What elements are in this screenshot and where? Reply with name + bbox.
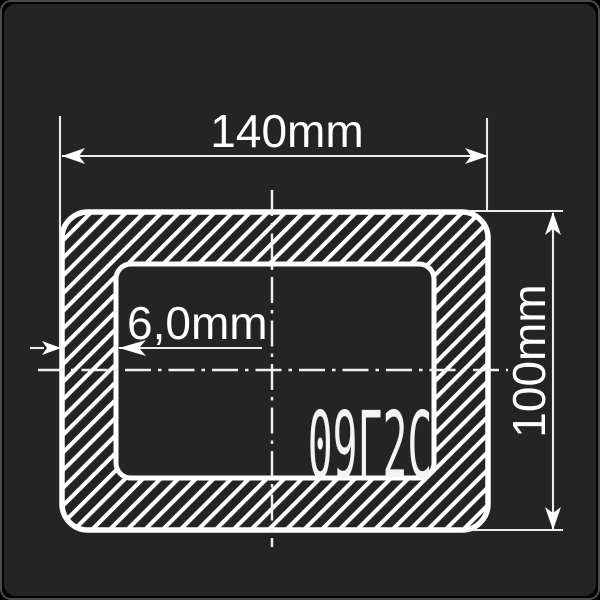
tube-cross-section-drawing: 140mm 100mm 6,0mm 09Г2С <box>0 0 600 600</box>
height-dimension-label: 100mm <box>503 284 555 437</box>
screenshot-canvas: 140mm 100mm 6,0mm 09Г2С <box>0 0 600 600</box>
thickness-dim-arrow-outer-icon <box>42 341 61 355</box>
thickness-dimension-label: 6,0mm <box>127 297 268 349</box>
steel-grade-label: 09Г2С <box>308 392 433 499</box>
steel-grade: 09Г2С <box>308 392 433 499</box>
width-dimension-label: 140mm <box>210 105 363 157</box>
